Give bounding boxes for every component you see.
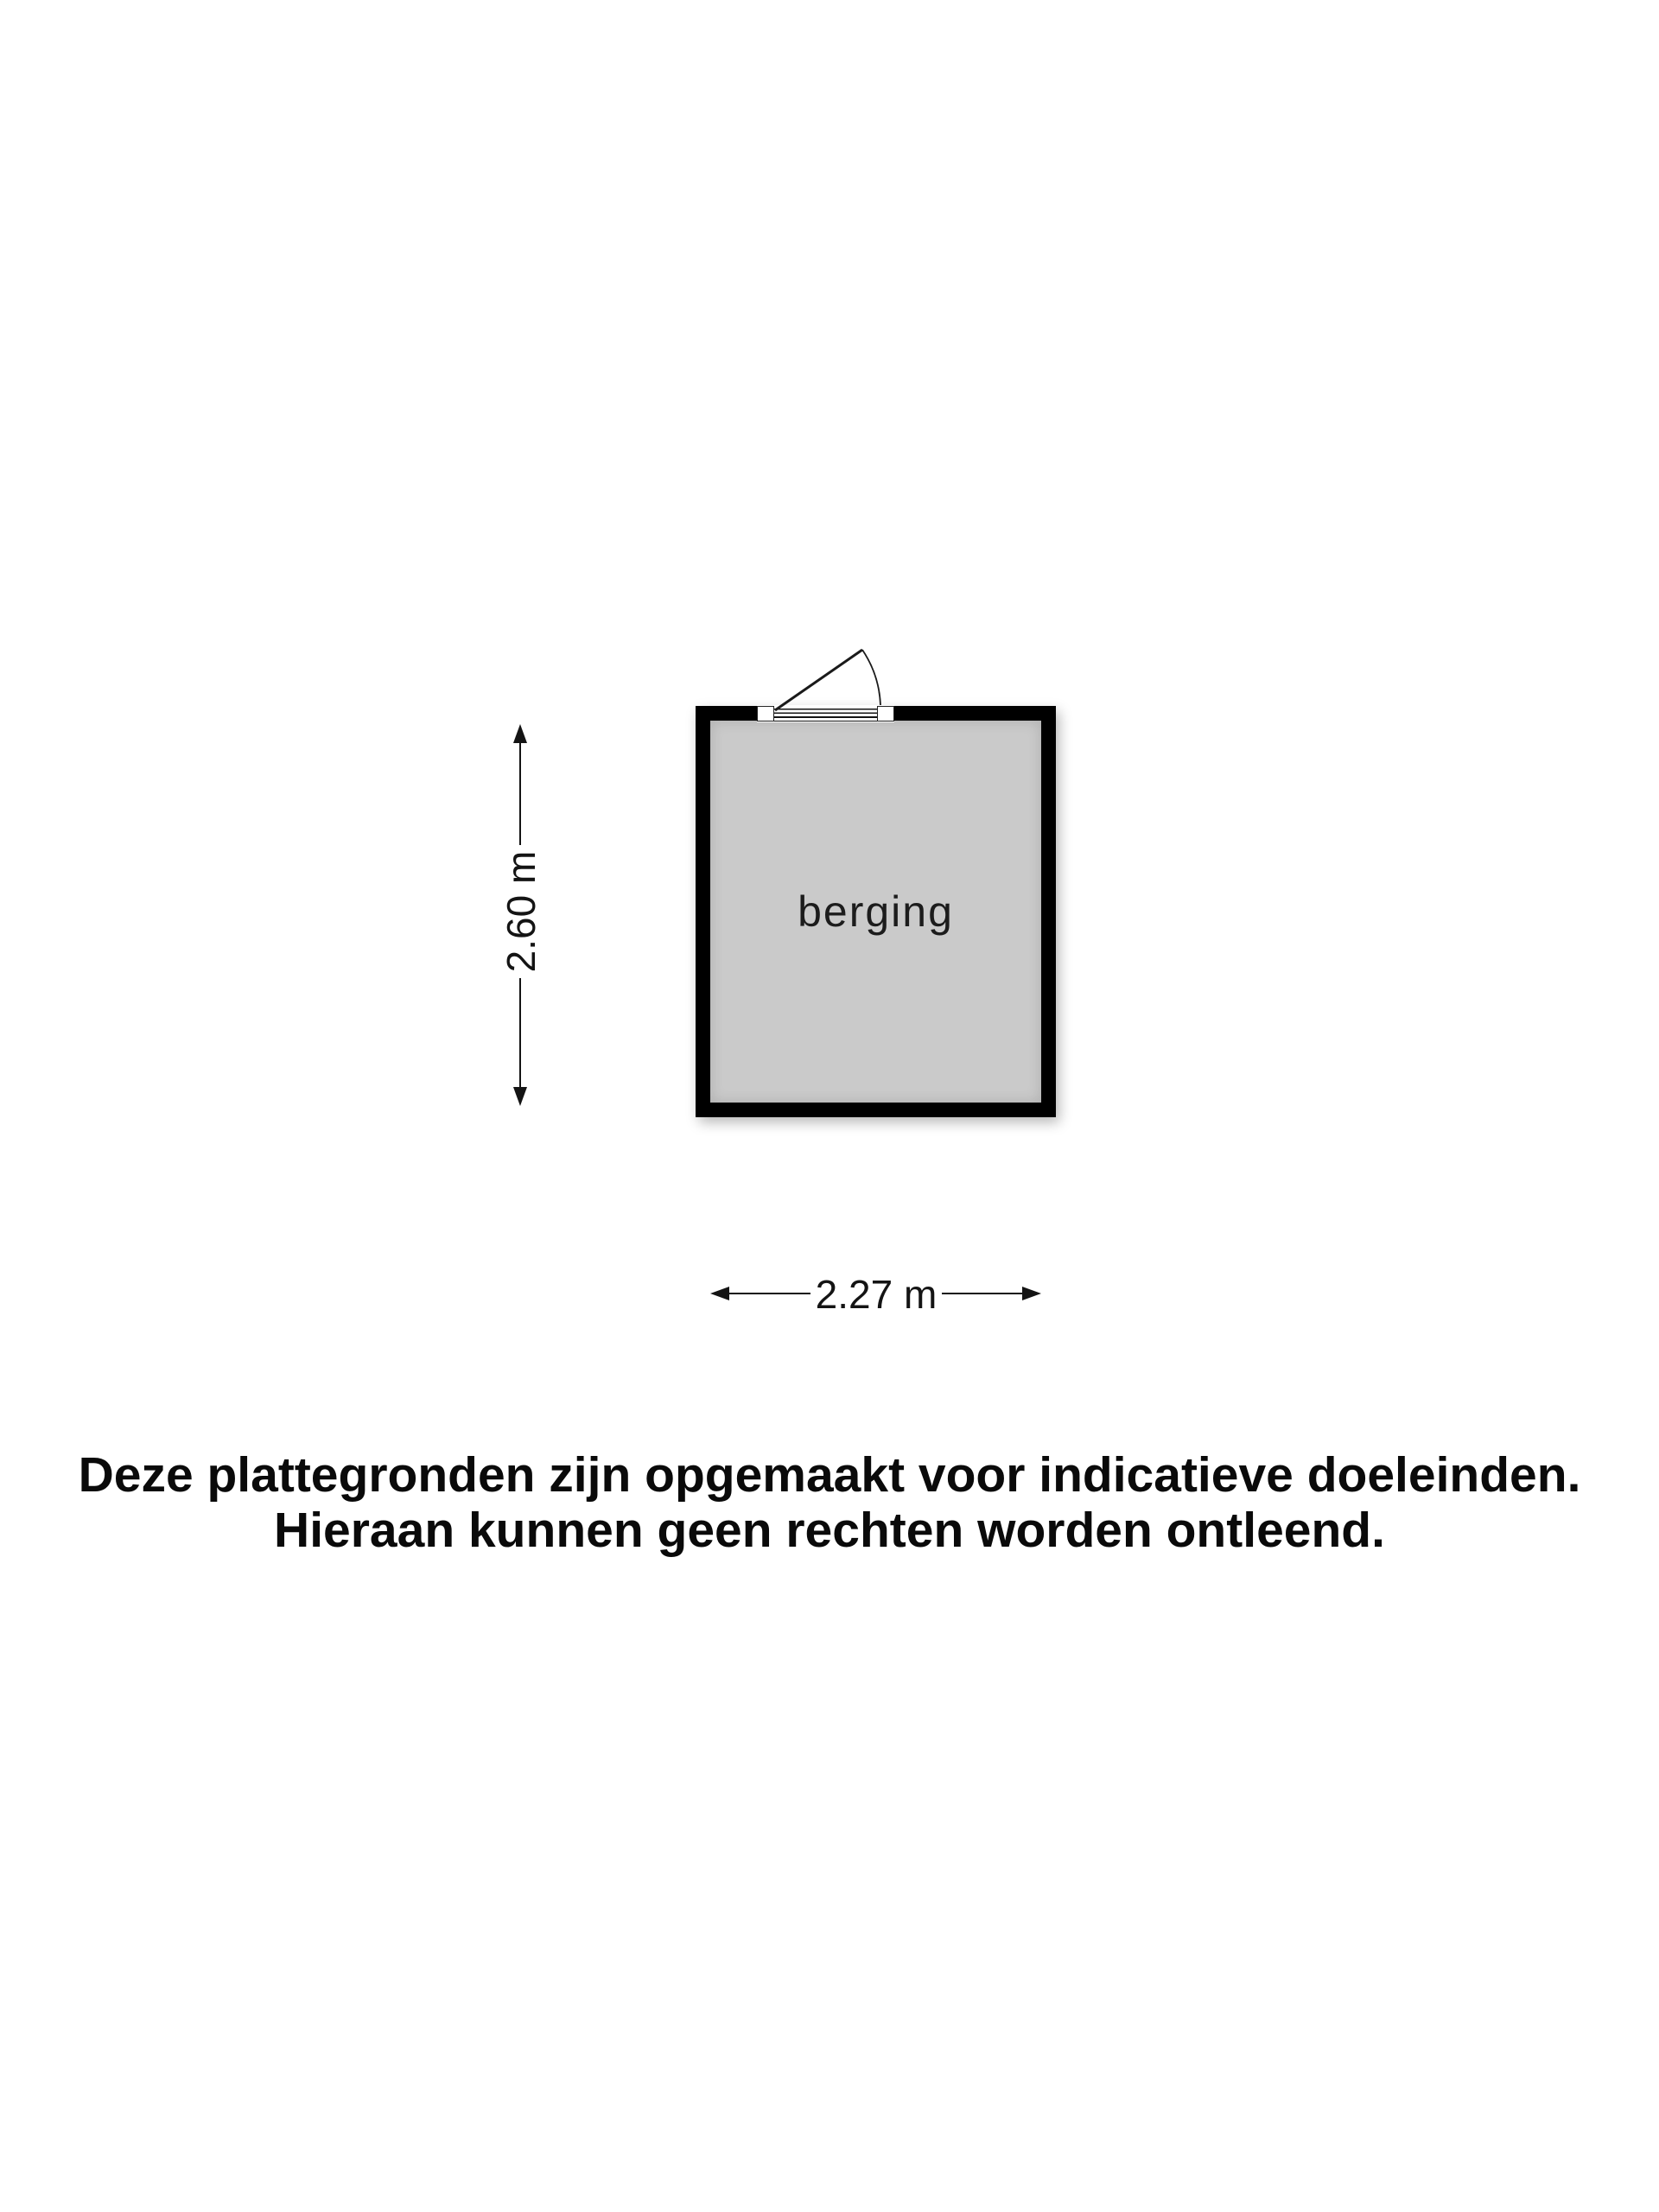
dim-width-label: 2.27 m <box>816 1271 938 1318</box>
door-leaf <box>774 709 877 721</box>
dim-height-label: 2.60 m <box>498 851 544 973</box>
dim-height-line-top <box>519 741 521 845</box>
room-berging: berging <box>696 706 1056 1117</box>
door-post-left <box>757 706 774 721</box>
disclaimer-text: Deze plattegronden zijn opgemaakt voor i… <box>0 1447 1659 1558</box>
dim-width-line-right <box>942 1293 1025 1294</box>
disclaimer-line-1: Deze plattegronden zijn opgemaakt voor i… <box>0 1447 1659 1503</box>
disclaimer-line-2: Hieraan kunnen geen rechten worden ontle… <box>0 1503 1659 1558</box>
dim-height-arrow-top <box>513 724 527 743</box>
dim-height-line-bottom <box>519 978 521 1087</box>
floorplan-page: berging 2.60 m 2.27 m Deze plattegronden… <box>0 0 1659 2212</box>
door-leaf-open-line <box>775 650 862 710</box>
dim-width-line-left <box>728 1293 810 1294</box>
dim-width-arrow-right <box>1022 1287 1041 1300</box>
door-swing-arc <box>862 650 880 705</box>
dim-height-arrow-bottom <box>513 1087 527 1106</box>
dim-width-arrow-left <box>710 1287 729 1300</box>
door-post-right <box>877 706 894 721</box>
room-label: berging <box>798 887 954 937</box>
